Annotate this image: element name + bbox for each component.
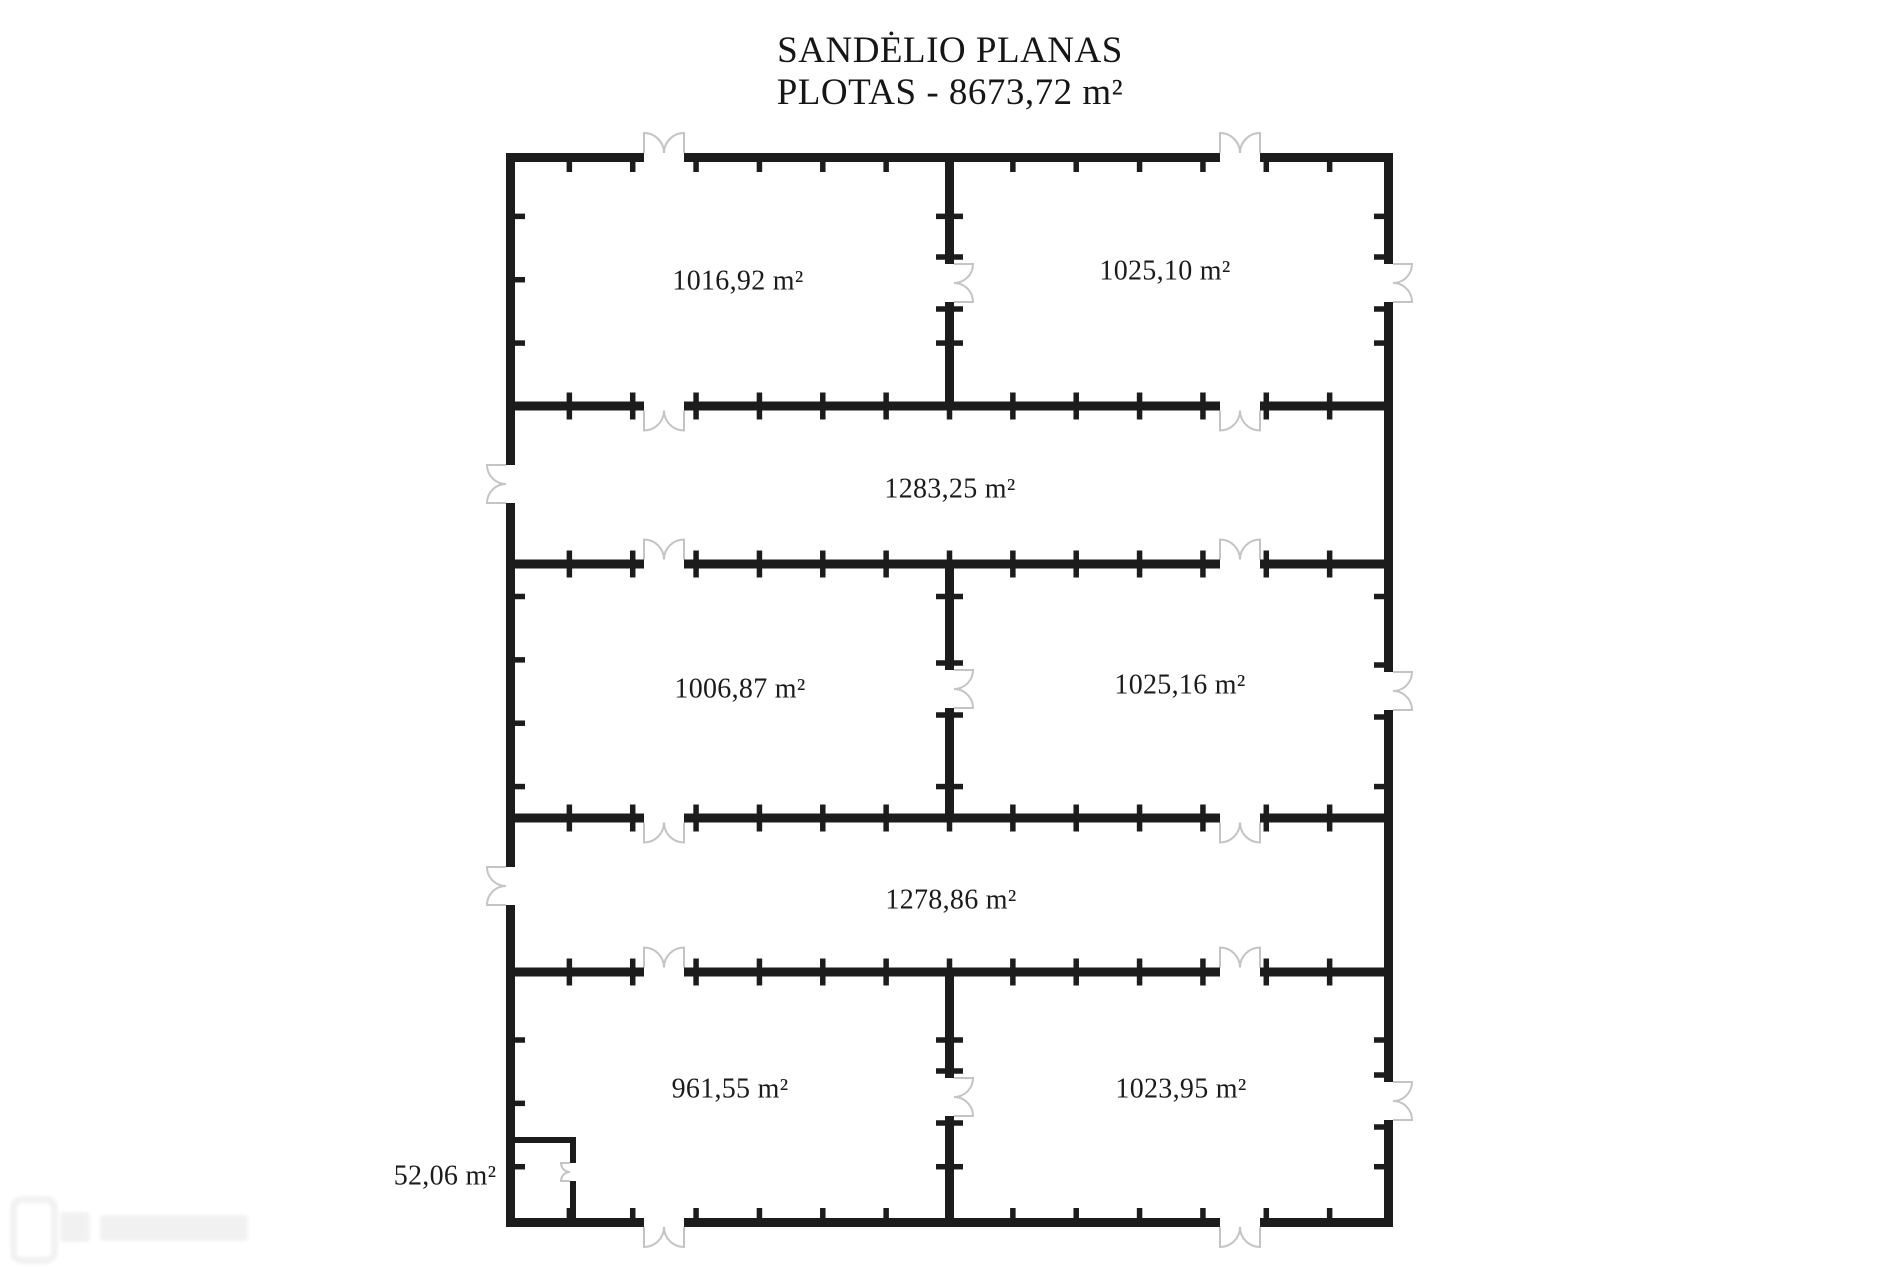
room-middle-left-area-label: 1006,87 m² xyxy=(674,673,805,705)
door-leaf-icon xyxy=(1240,1227,1260,1247)
page-subtitle: PLOTAS - 8673,72 m² xyxy=(777,72,1124,114)
corridor-lower-area-label: 1278,86 m² xyxy=(885,884,1016,916)
watermark-text-blur xyxy=(100,1215,248,1241)
door-leaf-icon xyxy=(487,867,506,886)
room-bottom-left-area-label: 961,55 m² xyxy=(672,1073,789,1105)
door-leaf-icon xyxy=(954,689,973,708)
door-leaf-icon xyxy=(954,1078,973,1097)
door-leaf-icon xyxy=(1220,948,1240,968)
floor-plan-drawing xyxy=(0,0,1900,1267)
page-title: SANDĖLIO PLANAS xyxy=(777,30,1124,72)
door-leaf-icon xyxy=(644,540,664,560)
door-leaf-icon xyxy=(954,264,973,283)
room-top-right-area-label: 1025,10 m² xyxy=(1099,255,1230,287)
watermark-text-blur xyxy=(60,1212,90,1242)
door-leaf-icon xyxy=(1220,133,1240,153)
door-leaf-icon xyxy=(644,133,664,153)
room-middle-right-area-label: 1025,16 m² xyxy=(1114,669,1245,701)
corridor-upper-area-label: 1283,25 m² xyxy=(884,473,1015,505)
door-leaf-icon xyxy=(1220,540,1240,560)
door-leaf-icon xyxy=(644,1227,664,1247)
door-leaf-icon xyxy=(1220,823,1240,843)
door-leaf-icon xyxy=(487,886,506,905)
door-leaf-icon xyxy=(1240,411,1260,431)
door-leaf-icon xyxy=(1240,823,1260,843)
door-leaf-icon xyxy=(664,948,684,968)
door-leaf-icon xyxy=(1240,540,1260,560)
door-leaf-icon xyxy=(1393,691,1412,710)
door-leaf-icon xyxy=(561,1172,570,1181)
door-leaf-icon xyxy=(954,283,973,302)
watermark-logo xyxy=(10,1196,58,1264)
door-leaf-icon xyxy=(1393,672,1412,691)
door-leaf-icon xyxy=(561,1163,570,1172)
door-leaf-icon xyxy=(1393,1101,1412,1120)
door-leaf-icon xyxy=(644,411,664,431)
door-leaf-icon xyxy=(664,133,684,153)
door-leaf-icon xyxy=(1240,133,1260,153)
floor-plan-page: SANDĖLIO PLANAS PLOTAS - 8673,72 m² 1016… xyxy=(0,0,1900,1267)
door-leaf-icon xyxy=(664,1227,684,1247)
door-leaf-icon xyxy=(1393,264,1412,283)
door-leaf-icon xyxy=(664,411,684,431)
door-leaf-icon xyxy=(644,948,664,968)
watermark xyxy=(8,1196,248,1256)
door-leaf-icon xyxy=(1220,411,1240,431)
room-top-left-area-label: 1016,92 m² xyxy=(672,265,803,297)
door-leaf-icon xyxy=(954,670,973,689)
door-leaf-icon xyxy=(1393,283,1412,302)
door-leaf-icon xyxy=(664,823,684,843)
door-leaf-icon xyxy=(487,465,506,484)
door-leaf-icon xyxy=(487,484,506,503)
room-bottom-right-area-label: 1023,95 m² xyxy=(1115,1073,1246,1105)
door-leaf-icon xyxy=(954,1097,973,1116)
title-block: SANDĖLIO PLANAS PLOTAS - 8673,72 m² xyxy=(777,30,1124,114)
door-leaf-icon xyxy=(1220,1227,1240,1247)
door-leaf-icon xyxy=(1393,1082,1412,1101)
room-small-area-label: 52,06 m² xyxy=(394,1160,497,1192)
door-leaf-icon xyxy=(1240,948,1260,968)
door-leaf-icon xyxy=(644,823,664,843)
door-leaf-icon xyxy=(664,540,684,560)
